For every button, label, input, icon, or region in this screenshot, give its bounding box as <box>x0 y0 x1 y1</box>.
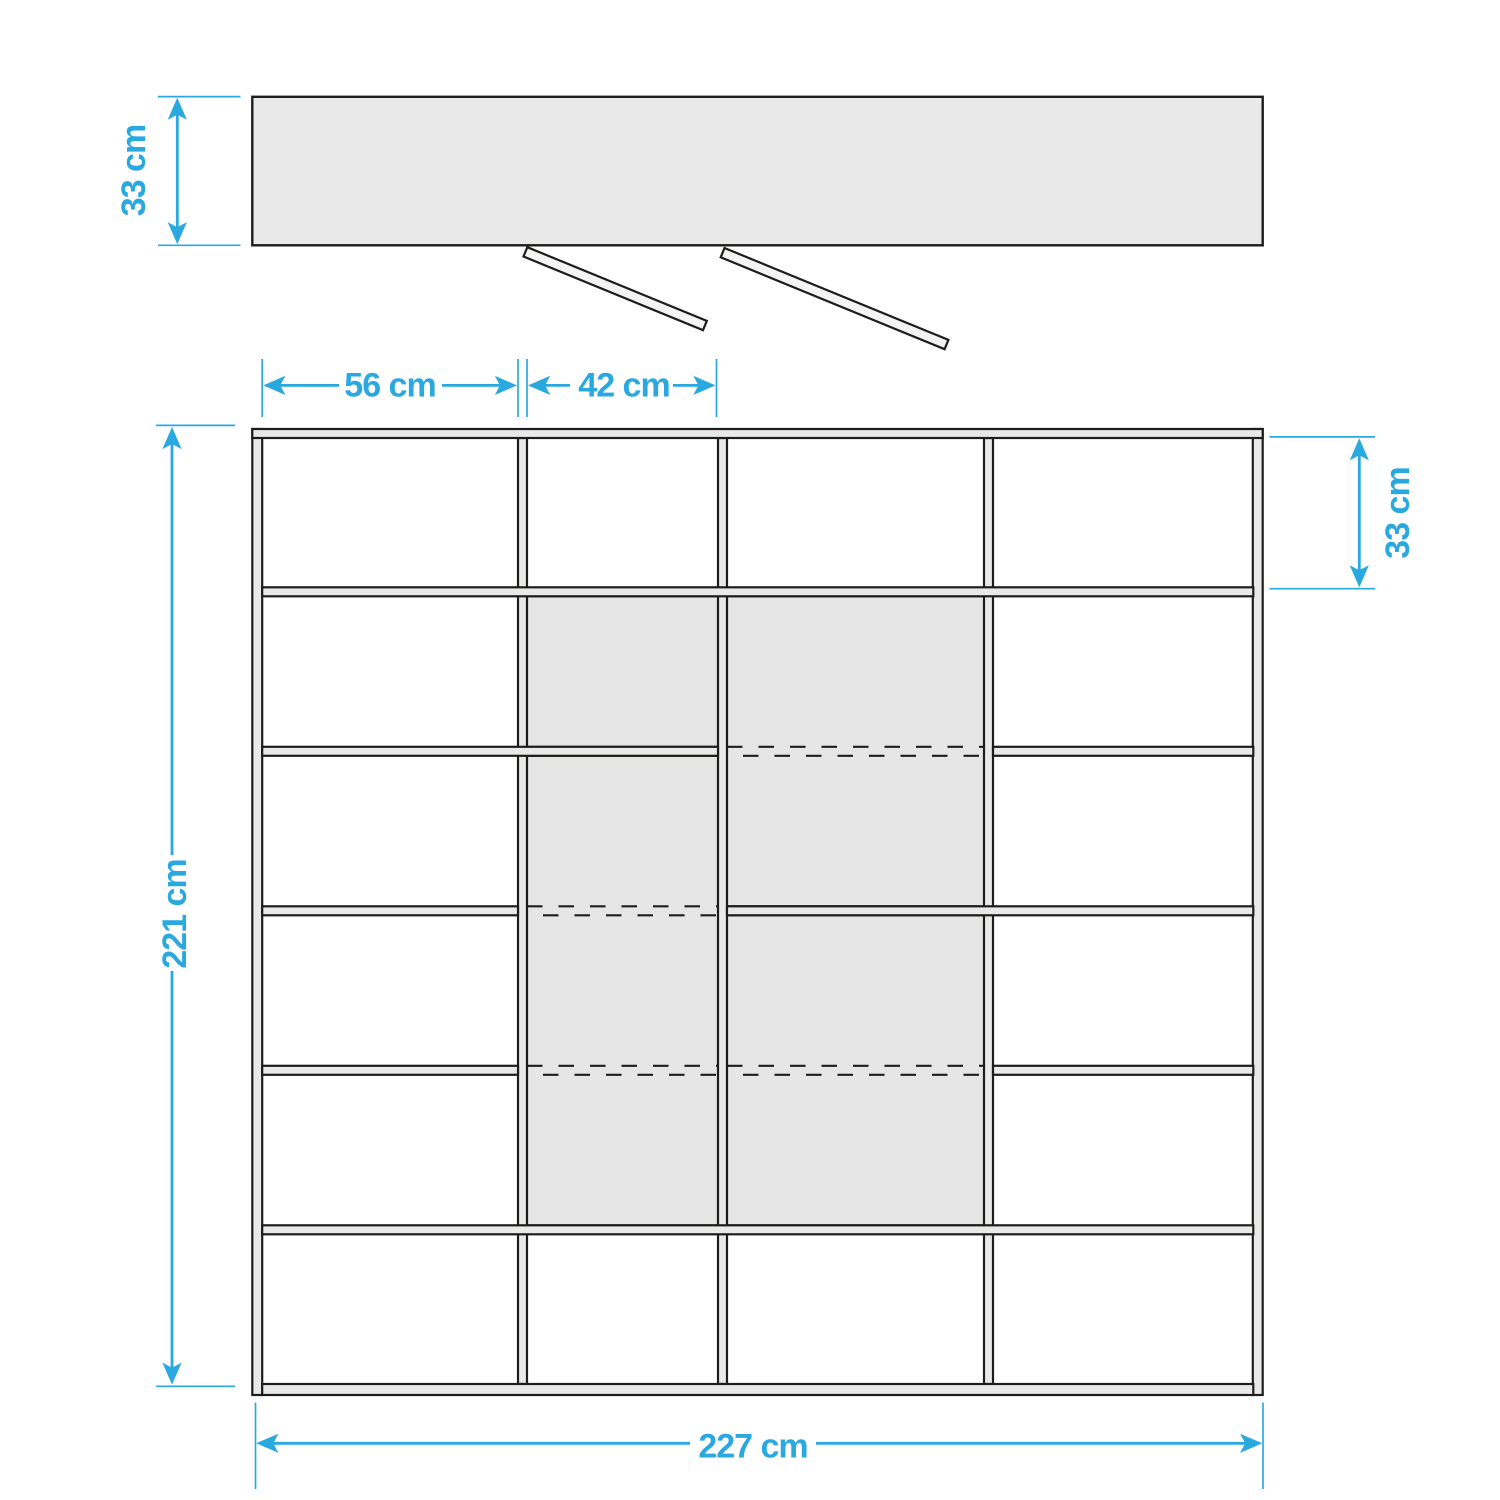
svg-text:33 cm: 33 cm <box>115 125 153 216</box>
svg-text:42 cm: 42 cm <box>578 366 669 404</box>
svg-text:56 cm: 56 cm <box>344 366 435 404</box>
svg-text:221 cm: 221 cm <box>156 859 194 968</box>
svg-text:227 cm: 227 cm <box>698 1427 807 1465</box>
svg-text:33 cm: 33 cm <box>1379 467 1417 558</box>
